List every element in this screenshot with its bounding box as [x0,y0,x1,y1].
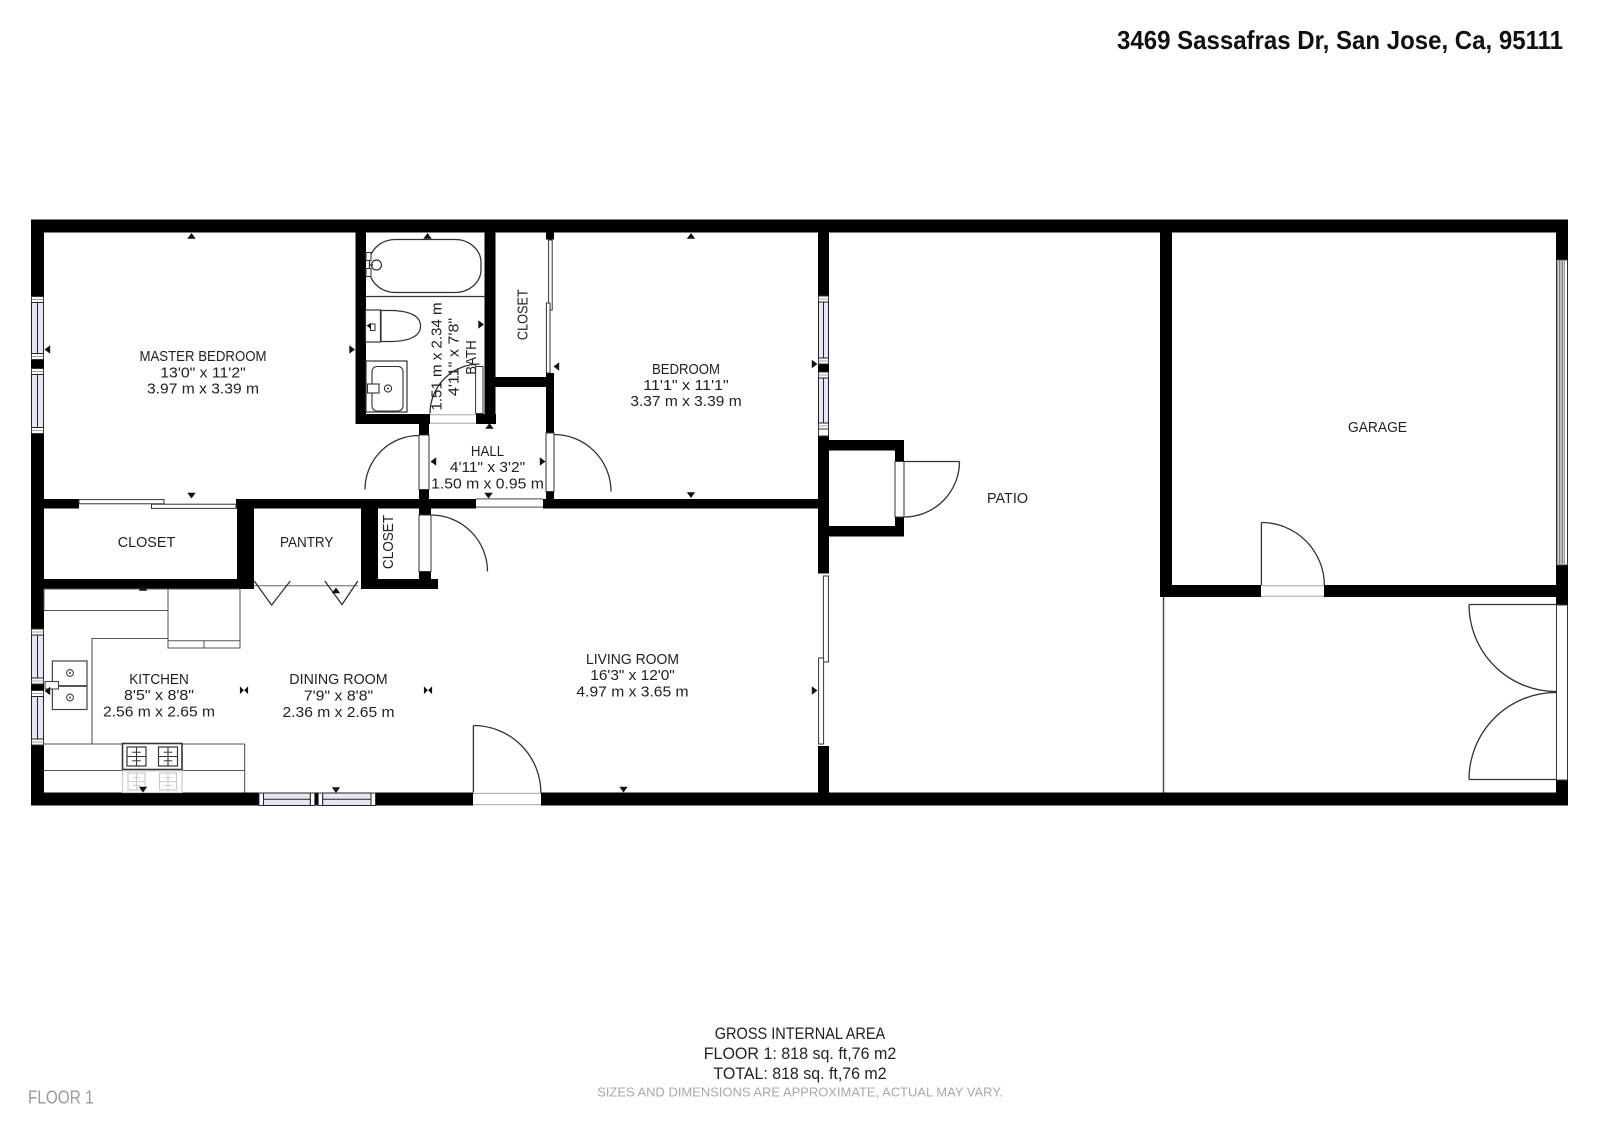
svg-text:2.36 m x 2.65 m: 2.36 m x 2.65 m [283,704,395,721]
svg-text:3.37 m x 3.39 m: 3.37 m x 3.39 m [630,393,741,410]
svg-text:LIVING ROOM: LIVING ROOM [586,651,679,668]
svg-text:1.51 m x 2.34 m: 1.51 m x 2.34 m [428,302,445,410]
svg-text:PANTRY: PANTRY [280,534,333,551]
svg-text:13'0" x 11'2": 13'0" x 11'2" [160,364,246,381]
svg-text:GARAGE: GARAGE [1348,419,1407,436]
svg-text:PATIO: PATIO [987,490,1028,507]
svg-text:FLOOR 1: 818 sq. ft,76 m2: FLOOR 1: 818 sq. ft,76 m2 [704,1044,897,1063]
svg-text:4.97 m x 3.65 m: 4.97 m x 3.65 m [576,684,688,701]
svg-text:4'11" x 7'8": 4'11" x 7'8" [445,318,462,396]
svg-text:MASTER BEDROOM: MASTER BEDROOM [139,348,266,365]
svg-text:3469 Sassafras Dr, San Jose, C: 3469 Sassafras Dr, San Jose, Ca, 95111 [1117,25,1563,55]
svg-text:16'3" x 12'0": 16'3" x 12'0" [590,667,675,684]
svg-text:KITCHEN: KITCHEN [129,671,189,688]
svg-text:11'1" x 11'1": 11'1" x 11'1" [643,377,729,394]
svg-text:TOTAL: 818 sq. ft,76 m2: TOTAL: 818 sq. ft,76 m2 [713,1064,886,1083]
svg-text:7'9" x 8'8": 7'9" x 8'8" [304,688,373,705]
svg-text:4'11" x 3'2": 4'11" x 3'2" [450,459,525,476]
svg-text:2.56 m x 2.65 m: 2.56 m x 2.65 m [103,704,215,721]
svg-text:SIZES AND DIMENSIONS ARE APPRO: SIZES AND DIMENSIONS ARE APPROXIMATE, AC… [597,1085,1003,1100]
svg-text:3.97 m x 3.39 m: 3.97 m x 3.39 m [147,381,259,398]
svg-text:BATH: BATH [463,340,480,375]
svg-text:CLOSET: CLOSET [515,289,532,340]
svg-text:8'5" x 8'8": 8'5" x 8'8" [124,687,194,704]
svg-text:CLOSET: CLOSET [380,515,397,569]
svg-text:CLOSET: CLOSET [118,534,176,551]
svg-text:DINING ROOM: DINING ROOM [289,671,387,688]
svg-text:HALL: HALL [471,443,504,460]
svg-text:GROSS INTERNAL AREA: GROSS INTERNAL AREA [715,1024,886,1043]
svg-text:BEDROOM: BEDROOM [652,361,720,378]
svg-text:FLOOR 1: FLOOR 1 [28,1088,94,1108]
svg-text:1.50 m x 0.95 m: 1.50 m x 0.95 m [431,475,544,492]
